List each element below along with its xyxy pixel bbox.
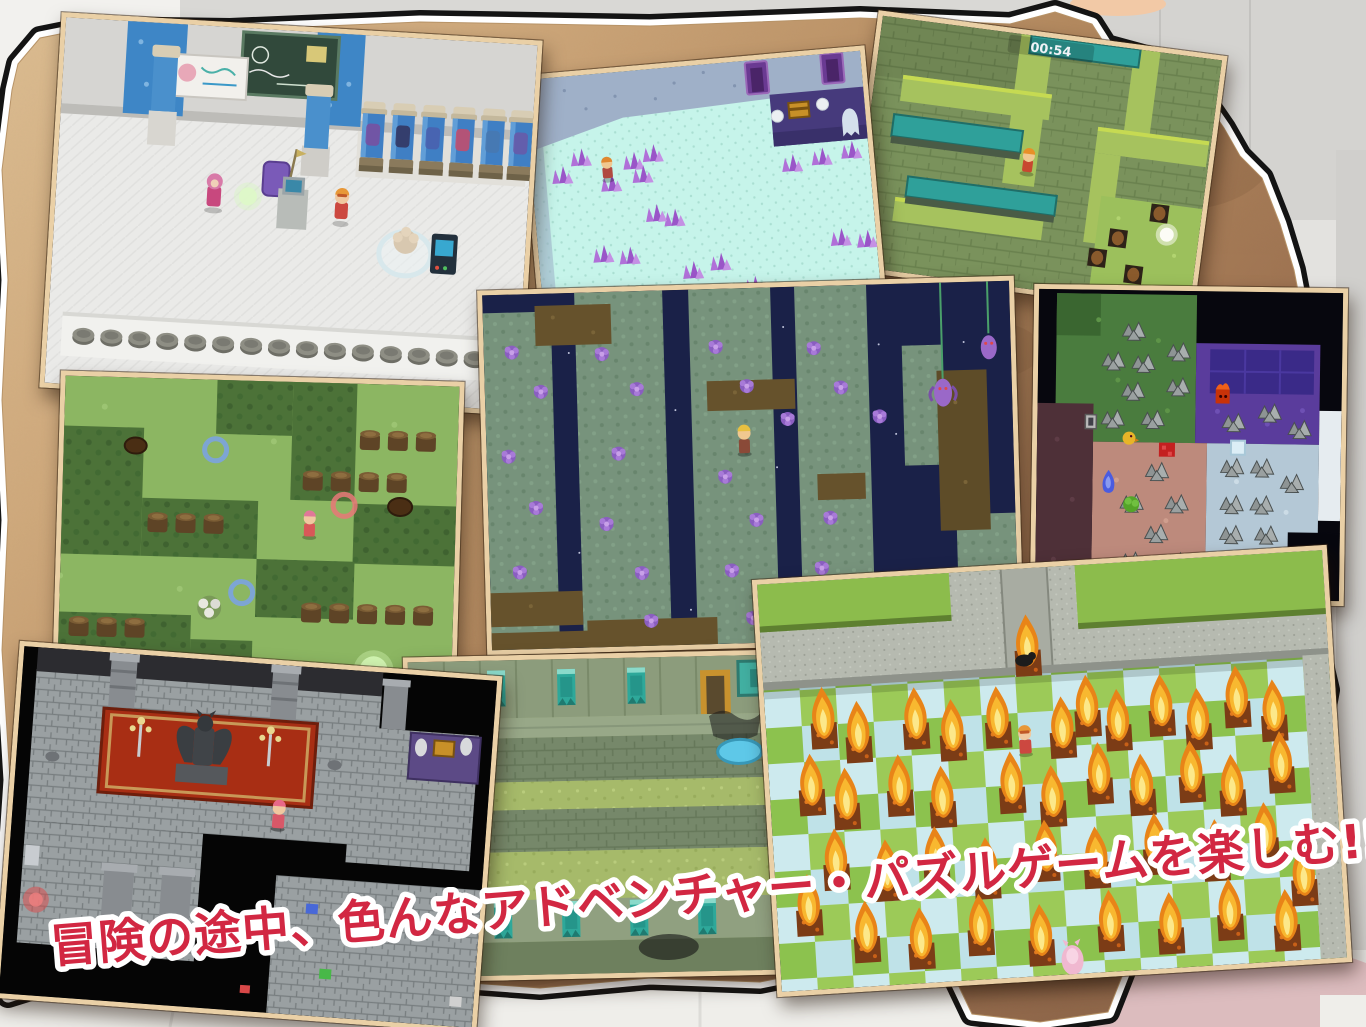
- photo-science-lab: [39, 12, 542, 416]
- whiteboard-poster: [170, 54, 248, 100]
- promo-collage: 00:54: [0, 0, 1366, 1027]
- ice-block: [1231, 441, 1245, 455]
- dark-pool: [769, 87, 867, 147]
- photo-timed-maze: 00:54: [844, 10, 1227, 316]
- purple-platform: [408, 733, 481, 784]
- treasure-chest: [433, 740, 454, 756]
- snowball: [816, 98, 829, 111]
- snowball: [771, 110, 784, 123]
- photo-dark-dungeon: [0, 641, 502, 1027]
- blue-switch: [306, 903, 319, 914]
- lava-monster: [1216, 383, 1230, 403]
- red-switch: [240, 985, 251, 994]
- green-switch: [319, 969, 332, 980]
- red-tile: [1159, 443, 1175, 457]
- white-door: [24, 845, 39, 866]
- photo-burning-field: [752, 545, 1352, 997]
- water-puddle: [717, 739, 761, 764]
